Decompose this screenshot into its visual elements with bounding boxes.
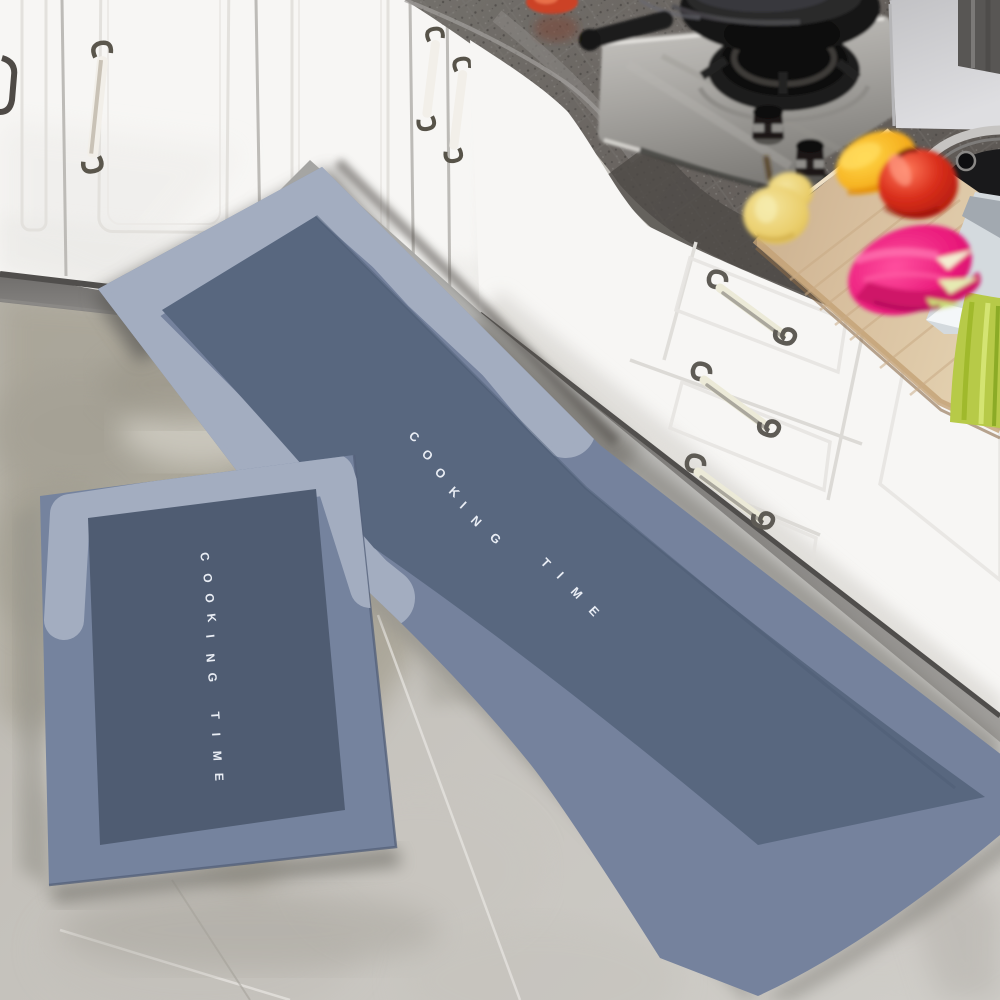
svg-text:O: O	[202, 592, 217, 603]
svg-text:N: N	[203, 653, 218, 663]
svg-text:M: M	[210, 750, 225, 761]
svg-text:G: G	[205, 672, 220, 683]
svg-text:E: E	[212, 773, 226, 781]
